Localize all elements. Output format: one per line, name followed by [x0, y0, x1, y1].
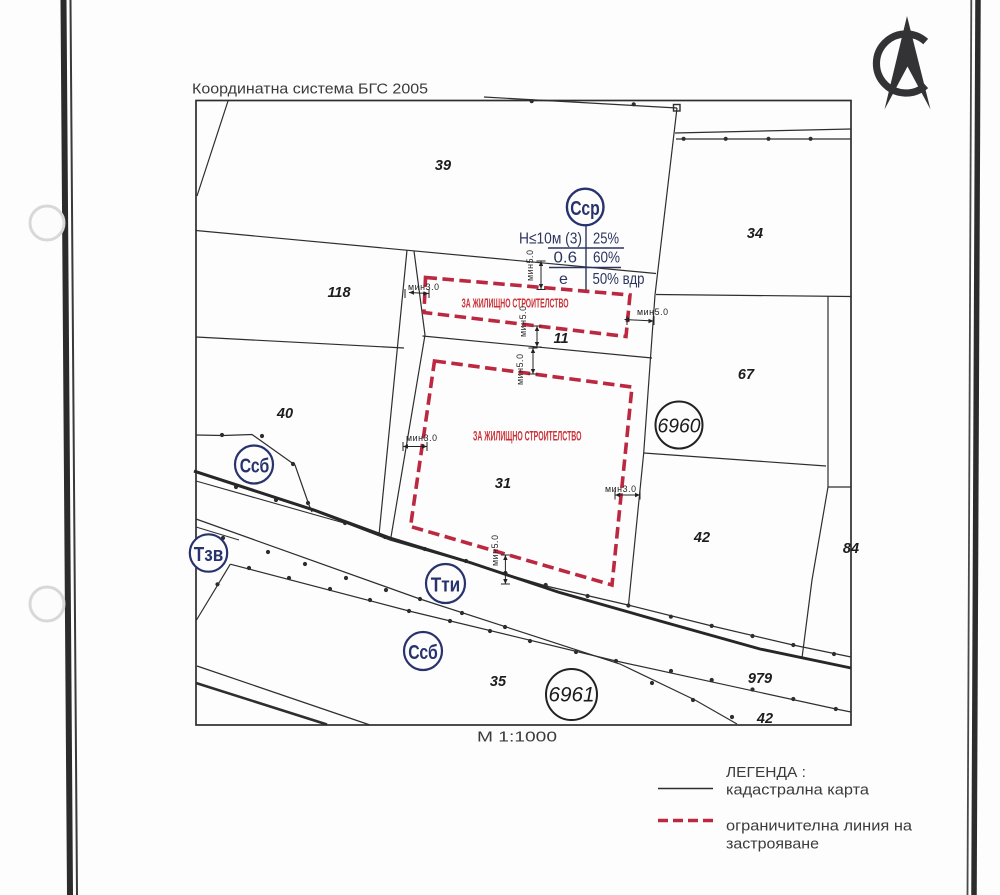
svg-text:35: 35: [490, 674, 507, 690]
svg-text:ЗА ЖИЛИЩНО СТРОИТЕЛСТВО: ЗА ЖИЛИЩНО СТРОИТЕЛСТВО: [473, 429, 582, 444]
svg-text:42: 42: [693, 530, 710, 546]
svg-text:34: 34: [747, 226, 763, 242]
svg-text:мин5.0: мин5.0: [637, 307, 668, 317]
svg-text:60%: 60%: [593, 250, 620, 267]
svg-text:кадастрална карта: кадастрална карта: [726, 782, 870, 799]
svg-text:мин5.0: мин5.0: [515, 354, 525, 385]
svg-text:мин5.0: мин5.0: [490, 535, 500, 566]
svg-text:67: 67: [738, 367, 755, 383]
svg-text:39: 39: [435, 158, 451, 174]
svg-text:6961: 6961: [549, 684, 595, 707]
svg-text:31: 31: [495, 476, 511, 492]
svg-text:мин3.0: мин3.0: [408, 282, 439, 292]
svg-text:ЗА ЖИЛИЩНО СТРОИТЕЛСТВО: ЗА ЖИЛИЩНО СТРОИТЕЛСТВО: [462, 297, 569, 311]
svg-text:Тти: Тти: [431, 574, 461, 597]
svg-text:застрояване: застрояване: [726, 836, 819, 853]
svg-text:е: е: [559, 271, 568, 288]
svg-text:Сср: Сср: [570, 197, 600, 220]
svg-text:25%: 25%: [593, 231, 619, 248]
svg-text:42: 42: [756, 711, 773, 727]
svg-text:Координатна система БГС 2005: Координатна система БГС 2005: [192, 81, 428, 98]
svg-text:84: 84: [843, 541, 859, 557]
svg-text:Ссб: Ссб: [240, 455, 270, 478]
svg-text:11: 11: [553, 331, 568, 347]
svg-text:Тзв: Тзв: [194, 543, 224, 566]
svg-text:мин5.0: мин5.0: [525, 250, 535, 281]
svg-text:М 1:1000: М 1:1000: [477, 729, 557, 746]
svg-text:мин5.0: мин5.0: [518, 306, 528, 337]
svg-text:0.6: 0.6: [554, 250, 578, 267]
svg-text:мин3.0: мин3.0: [605, 484, 636, 494]
svg-text:6960: 6960: [658, 416, 701, 438]
svg-text:40: 40: [276, 406, 293, 422]
svg-text:Н≤10м (3): Н≤10м (3): [519, 231, 582, 248]
svg-text:мин3.0: мин3.0: [406, 433, 437, 443]
svg-text:ЛЕГЕНДА :: ЛЕГЕНДА :: [726, 764, 806, 781]
svg-text:50% вдр: 50% вдр: [593, 271, 645, 288]
svg-text:118: 118: [327, 285, 351, 301]
svg-text:ограничителна линия на: ограничителна линия на: [726, 818, 913, 835]
svg-text:Ссб: Ссб: [408, 641, 438, 664]
svg-text:979: 979: [748, 671, 772, 687]
